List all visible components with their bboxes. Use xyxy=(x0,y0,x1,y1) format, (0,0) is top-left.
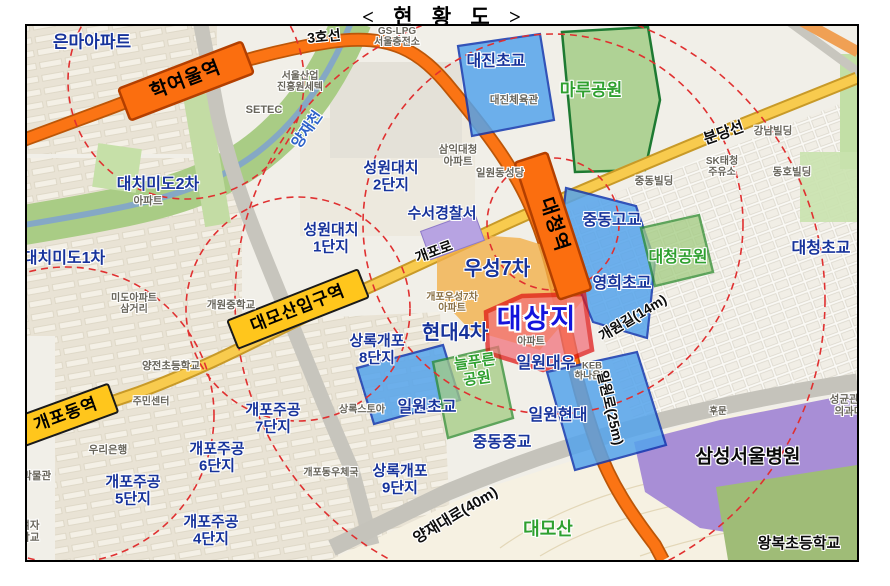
daecheong-elementary-label: 대청초교 xyxy=(792,240,851,258)
sangnok-gaepo8-label: 상록개포 8단지 xyxy=(349,334,404,367)
sk-gas-station-label: SK태청 주유소 xyxy=(706,156,738,178)
maru-park-label: 마루공원 xyxy=(560,82,623,101)
gaepo-jugong6-label: 개포주공 6단지 xyxy=(189,442,244,475)
sangnok-gaepo9-label: 상록개포 9단지 xyxy=(372,464,427,497)
ilwon-ro-label: 일원로(25m) xyxy=(594,369,626,447)
seongwon-daechi2-label: 성원대치 2단지 xyxy=(363,161,418,194)
daemosan-label: 대모산 xyxy=(523,520,573,540)
seoul-business-agency-label: 서울산업 진흥원세텍 xyxy=(277,71,323,93)
gaewon-middle-school-label: 개원중학교 xyxy=(207,300,255,312)
daechi-mido2-apt-label: 아파트 xyxy=(134,196,163,208)
wangbok-elementary-label: 왕복초등학교 xyxy=(758,536,841,553)
hakyeoul-station-label: 학여울역 xyxy=(148,58,224,104)
gangnam-building-label: 강남빌딩 xyxy=(754,126,793,138)
gaepo-post-office-label: 개포동우체국 xyxy=(303,468,358,479)
jungdong-middle-label: 중동중교 xyxy=(473,434,532,452)
sungkyunkwan-med-label: 성균관대 의과대 xyxy=(830,394,859,417)
site-status-map-figure: < 현 황 도 > xyxy=(0,0,890,586)
gaepodong-station-label: 개포동역 xyxy=(32,395,101,435)
gyeongun-museum-label: 경운박물관 xyxy=(25,471,51,483)
yangjeon-elementary-label: 양전초등학교 xyxy=(142,361,200,373)
gaepo-jugong4-label: 개포주공 4단지 xyxy=(183,515,238,548)
jungdong-building-label: 중동빌딩 xyxy=(635,176,674,188)
gaepo-woosung7-apt-label: 개포우성7차 아파트 xyxy=(426,292,478,314)
ilwon-hyundai-label: 일원현대 xyxy=(529,407,588,425)
map-canvas: 3호선GS-LPG 서울충전소은마아파트대진초교마루공원서울산업 진흥원세텍대진… xyxy=(25,24,859,562)
yangjaecheon-label: 양재천 xyxy=(289,108,326,151)
girls-school-clipped-label: 기여자 등학교 xyxy=(25,520,39,543)
samik-daecheong-apt-label: 삼익대청 아파트 xyxy=(439,144,478,167)
mido-samgeori-label: 미도아파트 삼거리 xyxy=(111,293,157,315)
woori-bank-label: 우리은행 xyxy=(89,445,128,457)
samsung-hospital-label: 삼성서울병원 xyxy=(696,448,801,469)
daechi-mido2-label: 대치미도2차 xyxy=(117,176,200,194)
target-site-label: 대상지 xyxy=(497,305,578,335)
map-labels-layer: 3호선GS-LPG 서울충전소은마아파트대진초교마루공원서울산업 진흥원세텍대진… xyxy=(27,26,857,560)
ilwon-cathedral-label: 일원동성당 xyxy=(476,168,524,180)
gaepo-jugong5-label: 개포주공 5단지 xyxy=(105,475,160,508)
line3-label: 3호선 xyxy=(307,28,342,47)
seongwon-daechi1-label: 성원대치 1단지 xyxy=(303,223,358,256)
gs-lpg-label: GS-LPG 서울충전소 xyxy=(374,26,420,48)
woosung7-label: 우성7차 xyxy=(464,258,530,280)
daecheong-park-label: 대청공원 xyxy=(649,249,708,267)
yeonghee-elementary-label: 영희초교 xyxy=(593,275,652,293)
daecheong-station-label: 대청역 xyxy=(534,195,571,254)
setec-label: SETEC xyxy=(246,104,283,116)
daechi-mido1-label: 대치미도1차 xyxy=(25,250,105,268)
sangnok-store-label: 상록스토아 xyxy=(339,405,385,416)
rear-gate-label: 후문 xyxy=(709,407,726,417)
eunma-apt-label: 은마아파트 xyxy=(53,34,131,53)
community-center-label: 주민센터 xyxy=(133,397,170,408)
bundang-line-label: 분당선 xyxy=(702,119,747,148)
gaewon-gil-label: 개원길(14m) xyxy=(596,292,669,344)
gaepo-jugong7-label: 개포주공 7단지 xyxy=(245,403,300,436)
gaepo-ro-label: 개포로 xyxy=(413,238,455,266)
ilwon-elementary-label: 일원초교 xyxy=(398,399,457,417)
daejin-gym-label: 대진체육관 xyxy=(490,95,538,107)
dongho-building-label: 동호빌딩 xyxy=(773,167,812,179)
suseo-police-label: 수서경찰서 xyxy=(407,206,476,223)
daemosan-entrance-station-label: 대모산입구역 xyxy=(248,282,348,336)
target-apt-label: 아파트 xyxy=(517,337,545,348)
daejin-elementary-label: 대진초교 xyxy=(467,53,526,71)
neulpureun-park-label: 늘푸른 공원 xyxy=(453,352,499,390)
jungdong-high-label: 중동고교 xyxy=(583,212,642,230)
ilwon-community-center-label: 일원 주민센터 xyxy=(857,294,859,317)
hyundai4-label: 현대4차 xyxy=(422,322,488,344)
ilwon-daewoo-label: 일원대우 xyxy=(517,355,576,373)
